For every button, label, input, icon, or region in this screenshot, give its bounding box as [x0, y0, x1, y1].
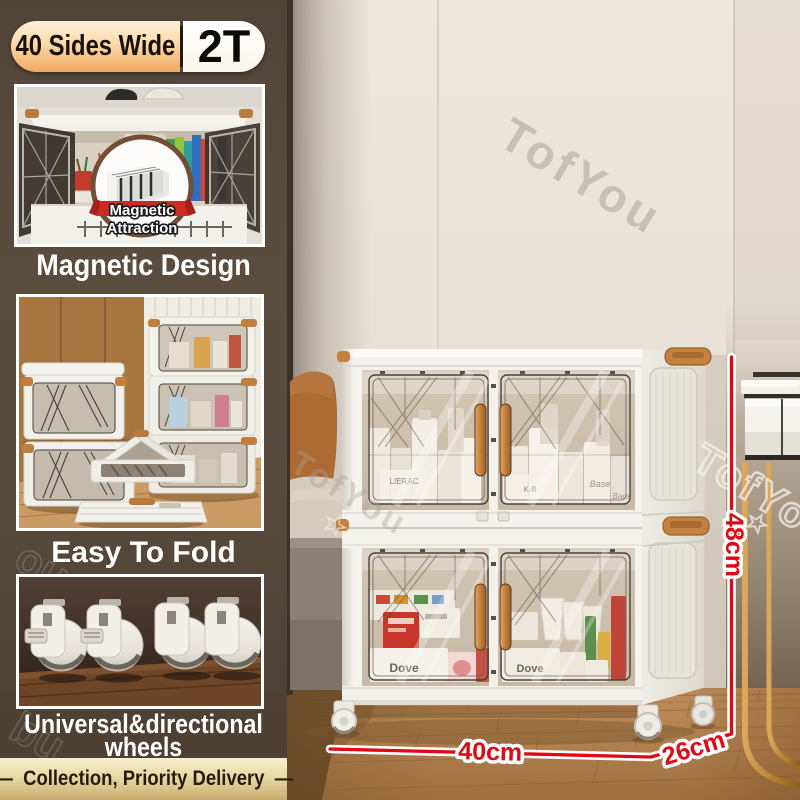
svg-text:Base: Base: [590, 479, 611, 489]
svg-text:40cm: 40cm: [458, 737, 523, 767]
svg-text:Attraction: Attraction: [107, 220, 178, 237]
svg-text:48cm: 48cm: [720, 513, 748, 577]
svg-text:Magnetic: Magnetic: [109, 202, 174, 219]
